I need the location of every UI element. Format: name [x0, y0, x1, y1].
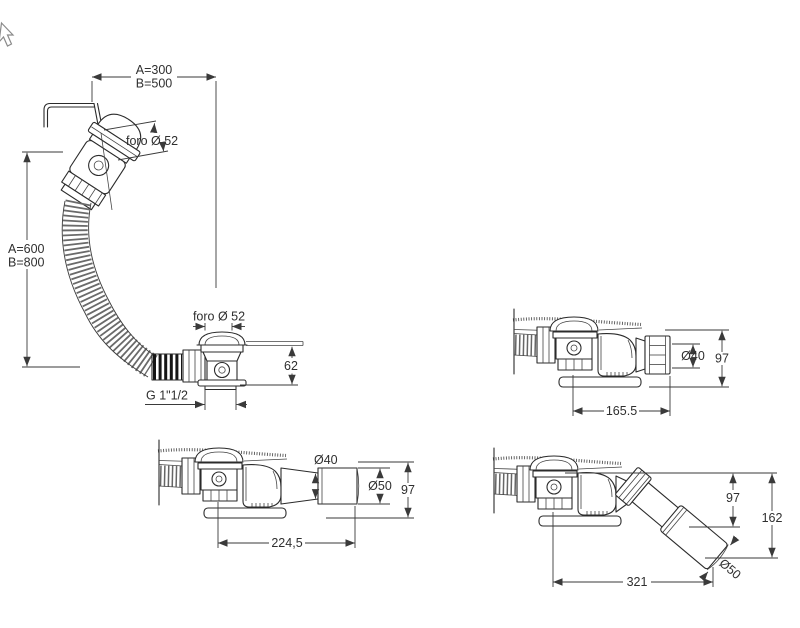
drain-hose-nut: [183, 350, 205, 382]
cursor-arrow-icon: [0, 23, 13, 46]
dim-label-97: 97: [715, 352, 729, 366]
view-angled-outlet: 97 162 321 Ø50: [493, 448, 782, 589]
dim-label-1655: 165.5: [606, 404, 637, 418]
dim-label-97: 97: [401, 483, 415, 497]
drain-knob: [215, 363, 230, 378]
drain-unit: [493, 448, 622, 526]
dim-label-321: 321: [627, 575, 648, 589]
dim-label-b800: B=800: [8, 256, 45, 270]
dim-label-b500: B=500: [136, 77, 173, 91]
dim-label-drain-hole: foro Ø 52: [193, 310, 245, 324]
dim-label-162: 162: [762, 511, 783, 525]
dim-label-d40: Ø40: [681, 349, 705, 363]
dim-label-overflow-hole: foro Ø 52: [126, 134, 178, 148]
dim-label-d50: Ø50: [368, 479, 392, 493]
flexible-hose: [62, 201, 154, 377]
main-view: A=300 B=500 A=600 B=800 foro Ø 52 foro Ø…: [8, 63, 303, 410]
drain-unit: [158, 440, 287, 518]
angled-pipe: [610, 462, 735, 578]
drawing-sheet: A=300 B=500 A=600 B=800 foro Ø 52 foro Ø…: [0, 0, 800, 628]
outlet-pipe-50: [318, 468, 357, 504]
dim-label-97: 97: [726, 491, 740, 505]
drain-popup-cap: [199, 332, 245, 345]
overflow-fitting: [53, 104, 152, 215]
view-straight-outlet: Ø40 97 165.5: [513, 309, 729, 418]
dim-label-a600: A=600: [8, 242, 45, 256]
view-extended-outlet: Ø40 Ø50 97 224,5: [158, 440, 415, 550]
dim-label-2245: 224,5: [271, 536, 302, 550]
threaded-outlet: [205, 386, 236, 390]
dim-label-a300: A=300: [136, 63, 173, 77]
dim-label-d50-angled: Ø50: [716, 556, 743, 582]
dim-label-d40: Ø40: [314, 453, 338, 467]
dim-label-62: 62: [284, 359, 298, 373]
technical-drawing: A=300 B=500 A=600 B=800 foro Ø 52 foro Ø…: [0, 0, 800, 628]
dim-label-thread: G 1"1/2: [146, 389, 188, 403]
drain-unit: [513, 309, 642, 387]
